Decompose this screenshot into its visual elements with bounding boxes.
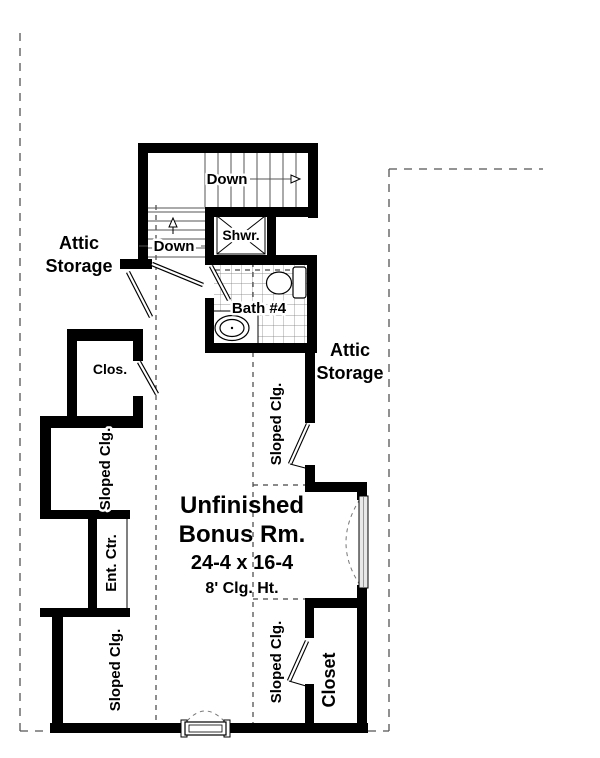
label-attic-storage-left-1: Attic bbox=[59, 233, 99, 253]
label-closet: Closet bbox=[319, 652, 339, 707]
label-room-ceiling: 8' Clg. Ht. bbox=[205, 580, 278, 597]
label-ent-ctr: Ent. Ctr. bbox=[103, 534, 120, 592]
label-attic-storage-right-1: Attic bbox=[330, 340, 370, 360]
label-clos: Clos. bbox=[93, 361, 127, 377]
door-clos bbox=[139, 362, 157, 394]
label-attic-storage-right-2: Storage bbox=[316, 363, 383, 383]
floor-plan-page: Attic Storage Attic Storage Down Down Sh… bbox=[0, 0, 600, 758]
sink bbox=[215, 316, 249, 341]
label-down-upper: Down bbox=[207, 171, 248, 188]
label-room-dimensions: 24-4 x 16-4 bbox=[191, 552, 294, 574]
label-sloped-upper-right: Sloped Clg. bbox=[268, 383, 285, 466]
label-shower: Shwr. bbox=[222, 227, 259, 243]
labels: Attic Storage Attic Storage Down Down Sh… bbox=[45, 171, 383, 711]
label-sloped-lower-right: Sloped Clg. bbox=[268, 621, 285, 704]
label-sloped-lower-left: Sloped Clg. bbox=[107, 629, 124, 712]
arched-window bbox=[181, 711, 230, 737]
label-room-name-1: Unfinished bbox=[180, 492, 304, 519]
label-sloped-upper-left: Sloped Clg. bbox=[97, 428, 114, 511]
floor-plan-drawing: Attic Storage Attic Storage Down Down Sh… bbox=[0, 0, 600, 758]
label-bath: Bath #4 bbox=[232, 300, 287, 317]
door-closet bbox=[289, 641, 307, 686]
label-room-name-2: Bonus Rm. bbox=[179, 521, 306, 548]
label-down-lower: Down bbox=[154, 238, 195, 255]
walls bbox=[40, 143, 368, 733]
label-attic-storage-left-2: Storage bbox=[45, 256, 112, 276]
door-hall bbox=[152, 264, 203, 285]
french-door bbox=[346, 496, 368, 588]
door-attic-left bbox=[128, 272, 151, 317]
door-attic-right bbox=[290, 424, 309, 469]
up-arrow-lower bbox=[169, 218, 177, 234]
